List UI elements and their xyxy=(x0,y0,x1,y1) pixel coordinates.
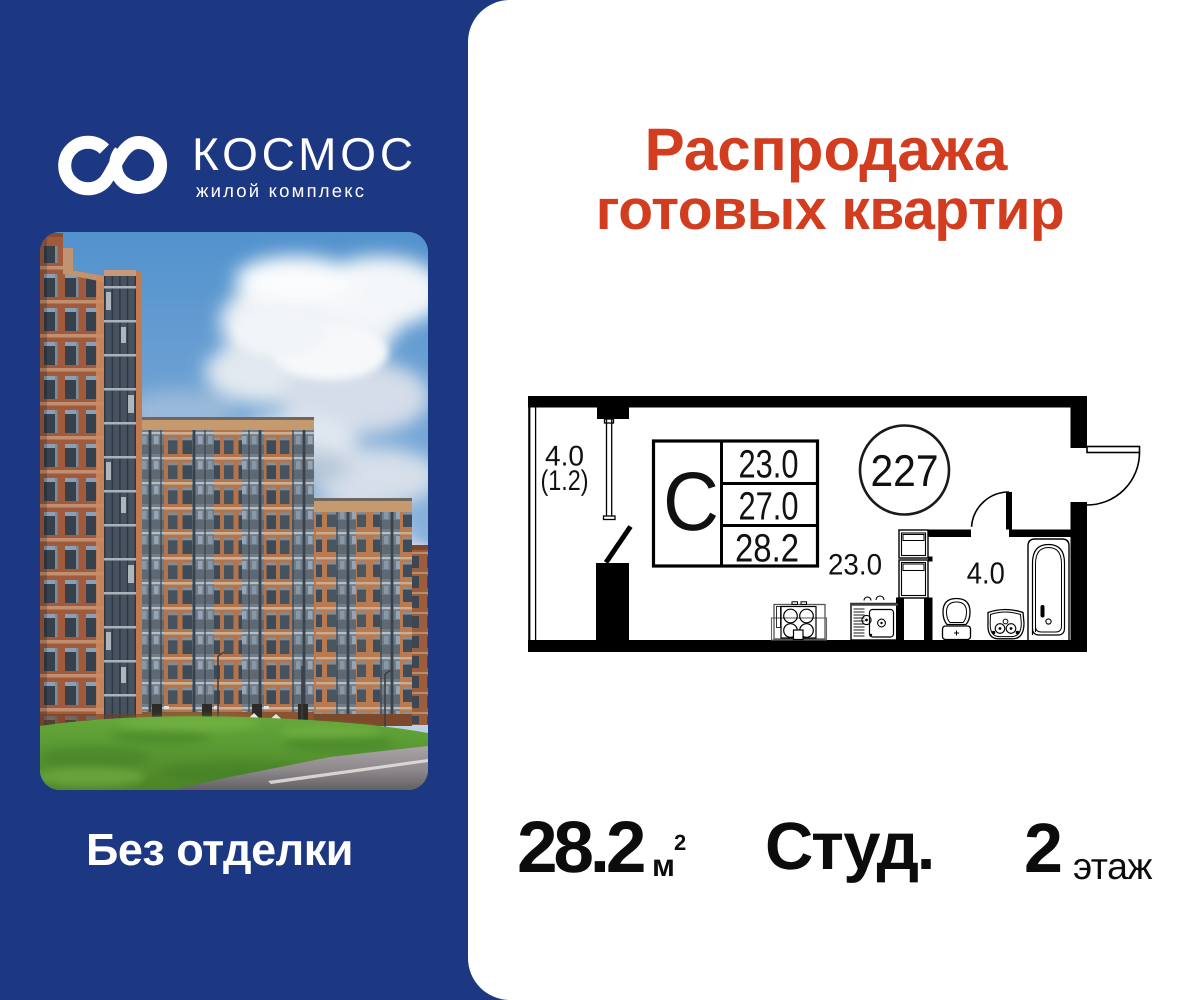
svg-text:23.0: 23.0 xyxy=(828,549,882,582)
svg-text:27.0: 27.0 xyxy=(739,485,799,529)
svg-text:4.0: 4.0 xyxy=(967,557,1005,591)
svg-text:(1.2): (1.2) xyxy=(541,465,589,497)
svg-text:28.2: 28.2 xyxy=(735,527,799,571)
svg-text:С: С xyxy=(663,455,719,548)
svg-text:23.0: 23.0 xyxy=(739,443,799,487)
svg-text:227: 227 xyxy=(871,447,939,496)
